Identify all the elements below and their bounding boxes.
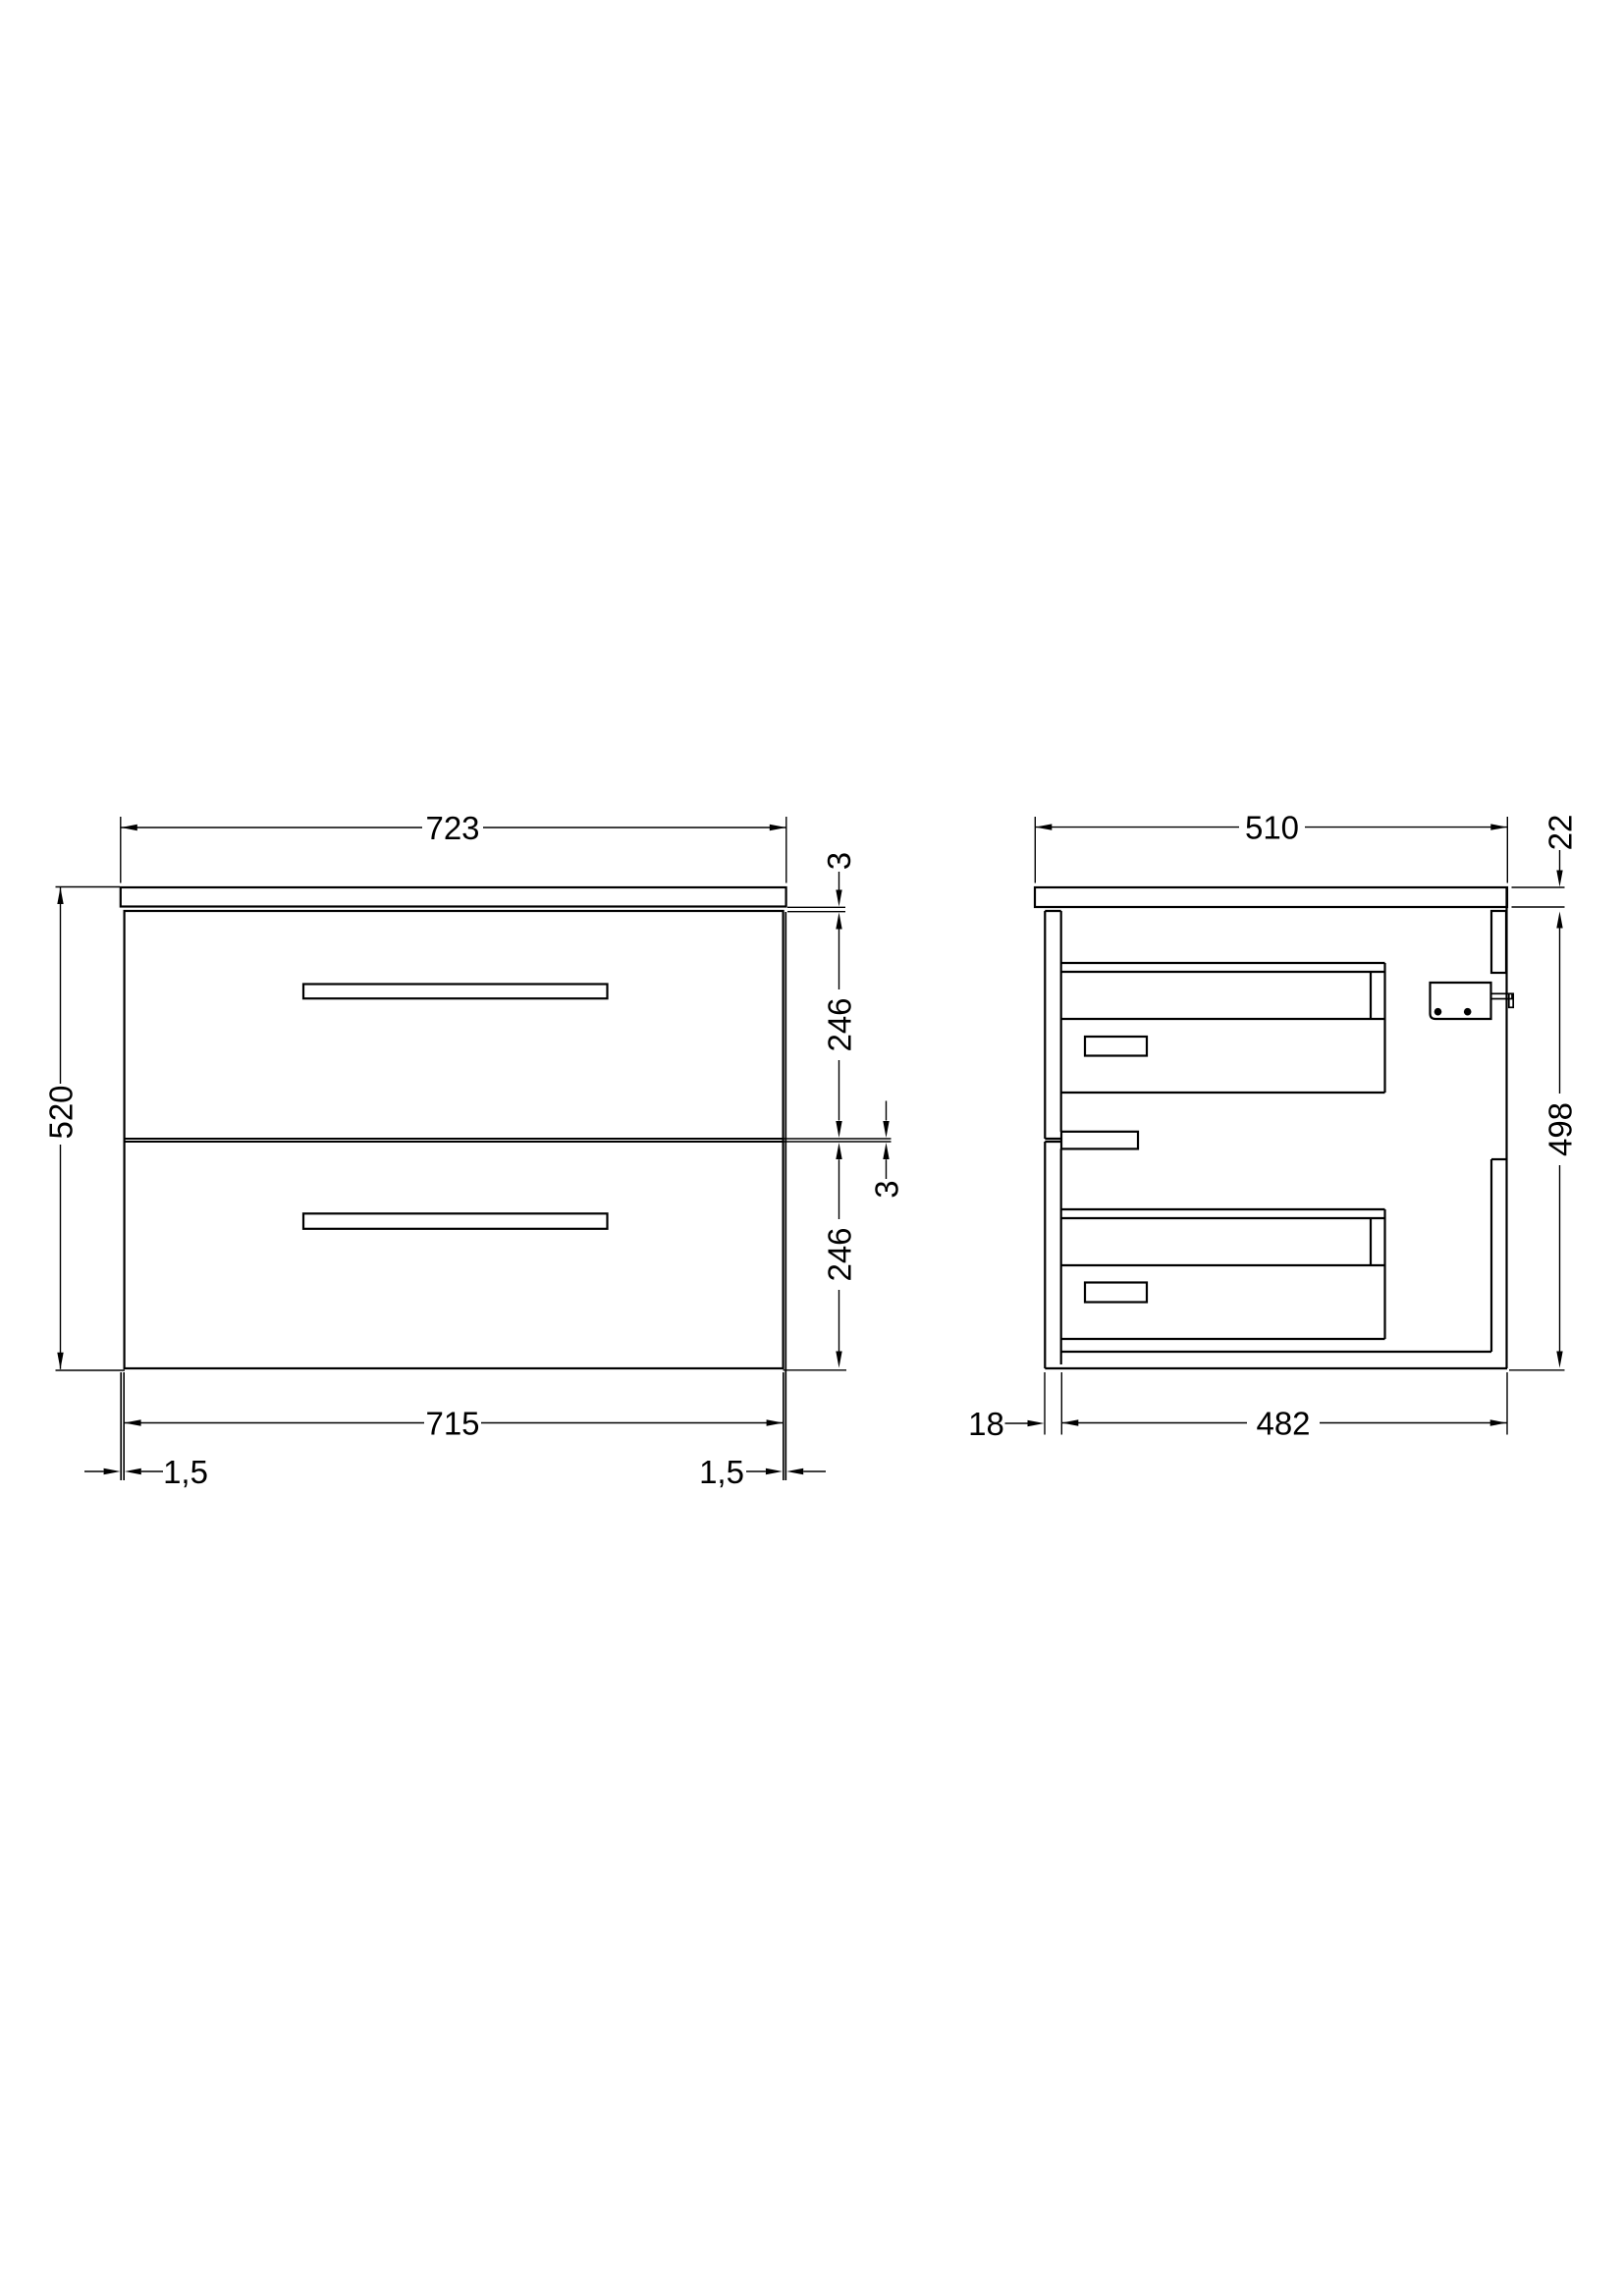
svg-text:22: 22 xyxy=(1542,815,1579,851)
svg-text:715: 715 xyxy=(425,1406,479,1442)
svg-text:723: 723 xyxy=(425,810,479,846)
svg-text:3: 3 xyxy=(869,1180,905,1198)
svg-text:520: 520 xyxy=(43,1085,80,1139)
svg-text:1,5: 1,5 xyxy=(699,1454,744,1490)
svg-text:246: 246 xyxy=(822,1227,858,1281)
svg-text:482: 482 xyxy=(1256,1406,1310,1442)
svg-text:3: 3 xyxy=(821,852,857,870)
svg-text:18: 18 xyxy=(968,1406,1004,1442)
svg-text:246: 246 xyxy=(822,997,858,1051)
svg-text:1,5: 1,5 xyxy=(163,1454,208,1490)
svg-text:498: 498 xyxy=(1542,1102,1579,1156)
svg-text:510: 510 xyxy=(1245,810,1299,846)
